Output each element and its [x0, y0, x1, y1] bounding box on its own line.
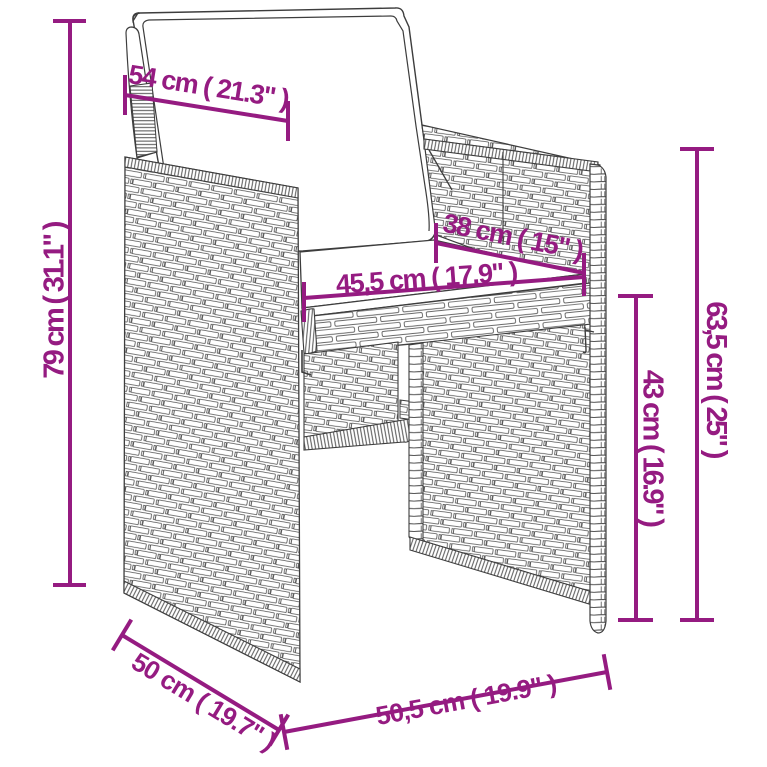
- svg-text:63,5 cm ( 25" ): 63,5 cm ( 25" ): [700, 301, 732, 458]
- svg-text:43 cm ( 16.9" ): 43 cm ( 16.9" ): [637, 370, 669, 527]
- svg-text:79 cm ( 31.1" ): 79 cm ( 31.1" ): [39, 221, 71, 378]
